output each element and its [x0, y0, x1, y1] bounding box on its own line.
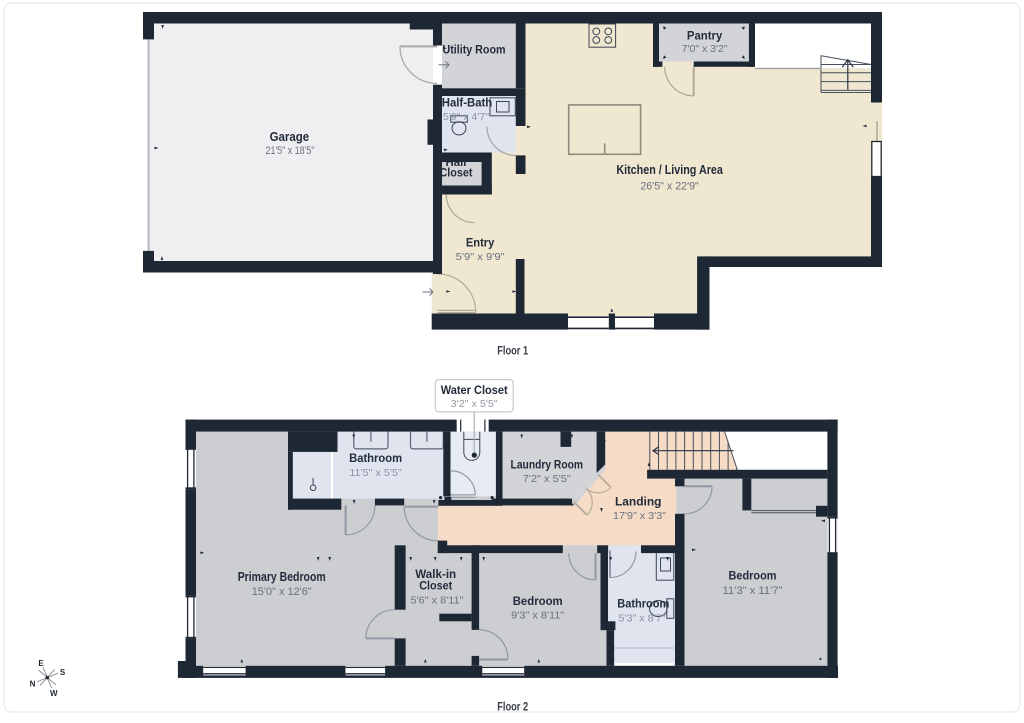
- svg-text:Floor 2: Floor 2: [497, 701, 528, 713]
- svg-text:S: S: [60, 668, 66, 677]
- svg-text:7'2" x 5'5": 7'2" x 5'5": [523, 473, 571, 485]
- svg-text:W: W: [50, 689, 58, 698]
- svg-text:Bedroom: Bedroom: [513, 594, 563, 608]
- svg-text:Utility Room: Utility Room: [443, 43, 506, 57]
- svg-text:Bathroom: Bathroom: [617, 597, 669, 611]
- svg-text:Landing: Landing: [615, 495, 662, 509]
- svg-text:N: N: [30, 680, 36, 689]
- svg-text:Bathroom: Bathroom: [349, 451, 402, 465]
- svg-text:11'5" x 5'5": 11'5" x 5'5": [349, 467, 402, 479]
- svg-text:Primary Bedroom: Primary Bedroom: [238, 570, 326, 584]
- svg-text:Kitchen / Living Area: Kitchen / Living Area: [616, 163, 723, 177]
- svg-text:3'2" x 5'5": 3'2" x 5'5": [451, 398, 498, 410]
- svg-text:17'9" x 3'3": 17'9" x 3'3": [613, 510, 666, 522]
- svg-text:Closet: Closet: [440, 166, 473, 180]
- svg-text:Closet: Closet: [419, 579, 452, 593]
- svg-text:5'9" x 4'7": 5'9" x 4'7": [443, 111, 489, 123]
- svg-text:Entry: Entry: [466, 235, 495, 249]
- svg-text:5'6" x 8'11": 5'6" x 8'11": [411, 594, 464, 606]
- svg-text:15'0" x 12'6": 15'0" x 12'6": [252, 586, 312, 598]
- svg-text:11'3" x 11'7": 11'3" x 11'7": [723, 585, 783, 597]
- svg-text:5'3" x 8'7": 5'3" x 8'7": [619, 613, 666, 625]
- svg-text:Bedroom: Bedroom: [729, 569, 777, 583]
- svg-text:Garage: Garage: [270, 130, 310, 144]
- svg-text:Pantry: Pantry: [687, 28, 723, 42]
- svg-text:E: E: [38, 659, 44, 668]
- svg-text:Water Closet: Water Closet: [441, 383, 508, 397]
- svg-text:Half-Bath: Half-Bath: [442, 96, 493, 110]
- svg-text:Laundry Room: Laundry Room: [511, 458, 584, 472]
- svg-text:21'5" x 18'5": 21'5" x 18'5": [266, 145, 315, 157]
- svg-text:Floor 1: Floor 1: [497, 345, 528, 357]
- svg-text:26'5" x 22'9": 26'5" x 22'9": [640, 181, 699, 193]
- svg-text:9'3" x 8'11": 9'3" x 8'11": [511, 610, 564, 622]
- svg-text:7'0" x 3'2": 7'0" x 3'2": [682, 43, 728, 55]
- svg-text:5'9" x 9'9": 5'9" x 9'9": [456, 251, 505, 263]
